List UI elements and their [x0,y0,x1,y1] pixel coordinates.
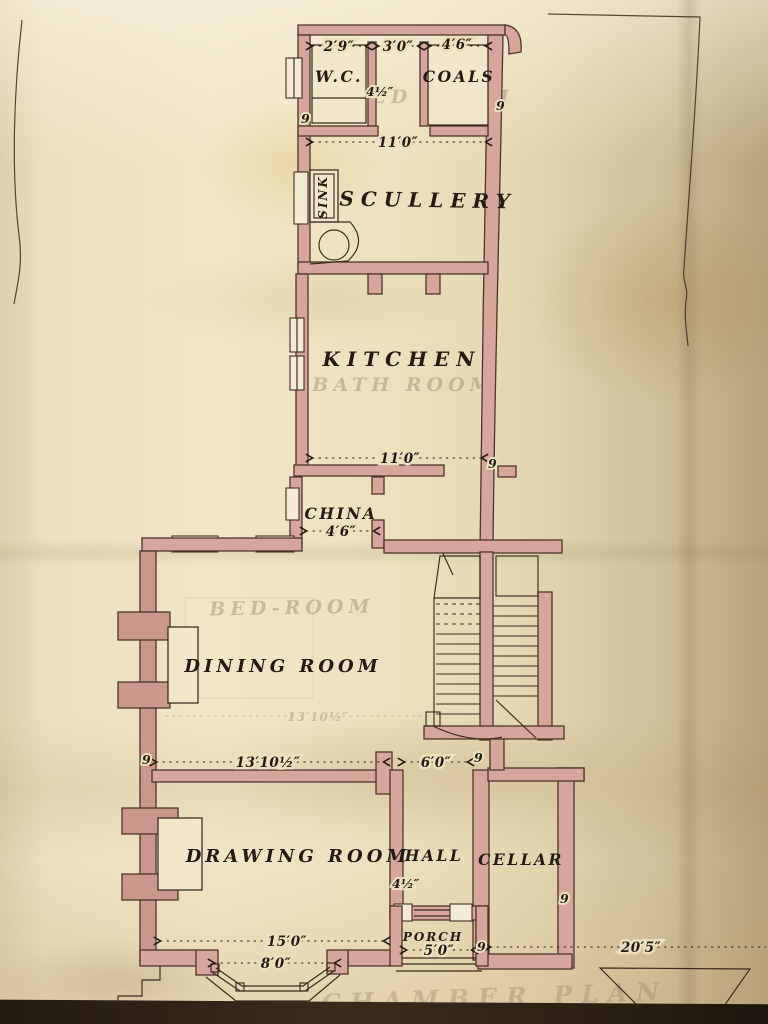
stair-spine-stub [490,739,504,770]
dining-pier-2 [118,682,170,708]
mark-9in-dining: 9 [142,752,151,767]
floor-plan-photo: BED ROOM BATH ROOM BED-ROOM 13′10½″ CHAM… [0,0,768,1024]
room-labels: W.C. COALS SCULLERY SINK KITCHEN CHINA D… [183,67,564,944]
staircase [424,552,564,770]
dim-kitchen: 11′0″ [380,451,420,467]
china-window [286,488,299,520]
front-wall-left [140,950,198,966]
photo-bottom-edge [0,1000,768,1024]
scullery-window [294,172,308,224]
stair-spine-wall [480,552,493,740]
landing-wall-stub [498,466,516,477]
dim-dining: 13′10½″ [236,755,301,771]
dimension-lines [156,46,766,963]
room-label-hall: HALL [404,846,463,865]
bay-glazing-outer [212,971,334,991]
dining-bottom-wall [152,770,390,782]
dim-stairwell: 3′0″ [383,39,413,55]
mark-9in-porch: 9 [477,939,486,954]
stair-right-wall [538,592,552,740]
dim-porch: 5′0″ [424,943,454,959]
room-label-coals: COALS [423,67,495,86]
mark-9in-hall: 9 [474,750,483,765]
kitchen-door-jamb-left [368,274,382,294]
bay-outer-outline [206,975,340,1001]
right-boundary-line [548,14,700,346]
room-label-porch: PORCH [402,930,463,944]
china-right-wall-lower [372,520,384,548]
room-label-dining: DINING ROOM [183,656,381,677]
main-top-wall-left [142,538,302,551]
dim-coals: 4′6″ [442,37,472,53]
mark-9in-rear-right: 9 [496,98,505,113]
front-wall-right [348,950,392,966]
cellar-bottom-wall [478,954,572,969]
room-label-sink: SINK [316,175,330,219]
porch-sidelight-right [450,904,472,921]
stair-treads-right [493,606,538,696]
ghost-dimension-text: 13′10½″ [287,710,348,724]
stair-treads-left-upper [436,604,480,624]
ghost-bath-room: BATH ROOM [311,374,495,396]
rear-top-wall-curve [505,25,521,54]
dim-drawing: 15′0″ [267,934,307,950]
porch-entrance-steps [396,958,482,971]
scullery-bottom-wall [298,262,488,274]
room-label-wc: W.C. [315,67,363,86]
mark-4half-rear: 4½″ [366,84,394,99]
copper-boiler [319,230,349,260]
rear-cross-wall-left [298,126,378,136]
hall-drawing-partition [390,770,403,918]
rear-cross-wall-right [430,126,488,136]
windows [172,58,308,552]
copper-enclosure [310,222,359,264]
dim-hall: 6′0″ [421,755,451,771]
mark-9in-cellar: 9 [560,891,569,906]
kitchen-bottom-wall [294,465,444,476]
stair-bottom-wall [424,726,564,739]
dim-wc: 2′9″ [323,39,354,55]
room-label-scullery: SCULLERY [339,186,517,213]
stair-treads-left [436,634,480,714]
room-label-china: CHINA [305,504,378,523]
dim-rear-block: 11′0″ [378,135,418,151]
room-label-cellar: CELLAR [478,850,564,869]
porch-right-wall [476,906,488,966]
dim-right-wing: 20′5″ [620,940,661,956]
stair-head-window [496,556,538,596]
dining-pier-1 [118,612,170,640]
rear-top-wall [298,25,505,35]
dim-china: 4′6″ [326,524,356,540]
porch-left-wall [390,906,402,966]
ghost-bed-room-front: BED-ROOM [208,596,375,621]
kitchen-door-jamb-right [426,274,440,294]
left-boundary-line [14,20,22,304]
china-right-wall-upper [372,477,384,494]
dim-bay: 8′0″ [261,956,291,972]
main-top-wall-right [384,540,562,553]
room-label-kitchen: KITCHEN [322,347,482,371]
bay-pier-right [327,950,348,974]
mark-4half-hall: 4½″ [392,876,420,891]
mark-9in-kitchen: 9 [488,456,497,471]
mark-9in-rear-left: 9 [301,111,310,126]
floor-plan-drawing: BED ROOM BATH ROOM BED-ROOM 13′10½″ CHAM… [0,0,768,1024]
room-label-drawing: DRAWING ROOM [185,846,411,867]
stair-cupboard-outline [434,556,480,598]
